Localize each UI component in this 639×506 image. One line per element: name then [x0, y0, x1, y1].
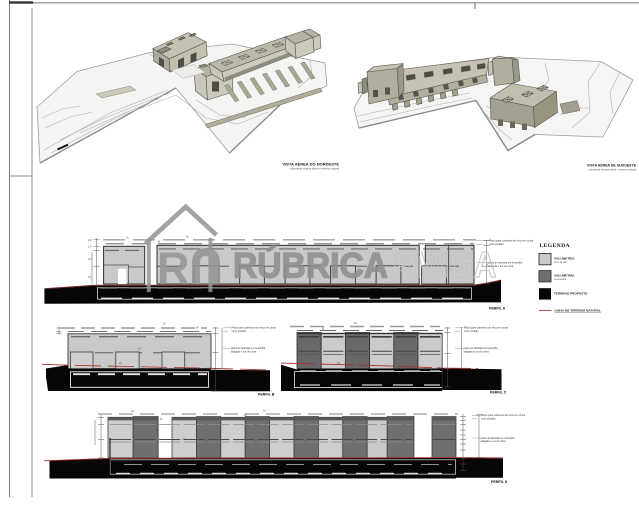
svg-text:muro pintado: muro pintado — [481, 418, 496, 421]
svg-text:0.9: 0.9 — [88, 239, 92, 242]
svg-text:3.2: 3.2 — [88, 258, 92, 261]
svg-text:10: 10 — [354, 322, 357, 325]
svg-text:afagada e cor de cinza: afagada e cor de cinza — [231, 351, 257, 354]
svg-text:LINHA DO TERRENO NATURAL: LINHA DO TERRENO NATURAL — [555, 309, 602, 313]
svg-text:VISTA AÉREA DO NORDESTE: VISTA AÉREA DO NORDESTE — [282, 162, 339, 167]
svg-text:AMIGA: AMIGA — [391, 244, 497, 285]
svg-text:volumetria urbana sobre o terr: volumetria urbana sobre o terreno natura… — [588, 167, 636, 171]
svg-text:10: 10 — [263, 410, 266, 413]
svg-text:VOLUMETRIA: VOLUMETRIA — [554, 256, 575, 260]
svg-text:10: 10 — [131, 410, 134, 413]
svg-text:VISTA AÉREA DE SUDOESTE: VISTA AÉREA DE SUDOESTE — [587, 162, 637, 167]
svg-text:10: 10 — [126, 237, 129, 240]
svg-text:afagada e cor de cinza: afagada e cor de cinza — [481, 440, 507, 443]
svg-text:afagada e cor de cinza: afagada e cor de cinza — [464, 351, 490, 354]
svg-text:10: 10 — [163, 323, 166, 326]
svg-text:recuperada: recuperada — [554, 278, 567, 281]
svg-text:volumetria urbana sobre o terr: volumetria urbana sobre o terreno natura… — [290, 167, 340, 171]
svg-text:muro pintado: muro pintado — [232, 330, 247, 333]
svg-text:VOLUMETRIA: VOLUMETRIA — [554, 273, 575, 277]
svg-text:PERFIL C: PERFIL C — [490, 391, 507, 395]
svg-text:muro pintado: muro pintado — [464, 330, 479, 333]
svg-text:plano de fachada em betonilha: plano de fachada em betonilha — [231, 347, 266, 350]
svg-text:PERFIL B: PERFIL B — [258, 393, 275, 397]
svg-text:10: 10 — [186, 236, 189, 239]
svg-text:PERFIL A: PERFIL A — [489, 307, 506, 311]
svg-text:W: W — [196, 327, 199, 330]
svg-text:1.4: 1.4 — [88, 246, 92, 249]
svg-text:PERFIL D: PERFIL D — [491, 480, 508, 484]
svg-text:2.4: 2.4 — [88, 276, 92, 279]
svg-text:plano de fachada em betonilha: plano de fachada em betonilha — [464, 347, 499, 350]
svg-text:TERRENO PROPOSTO: TERRENO PROPOSTO — [554, 291, 588, 295]
svg-text:RÚBRICA: RÚBRICA — [233, 245, 388, 285]
svg-text:LEGENDA: LEGENDA — [540, 243, 570, 249]
svg-text:W: W — [160, 418, 163, 421]
svg-text:R: R — [157, 243, 190, 294]
svg-text:trem da vilá: trem da vilá — [554, 261, 567, 264]
